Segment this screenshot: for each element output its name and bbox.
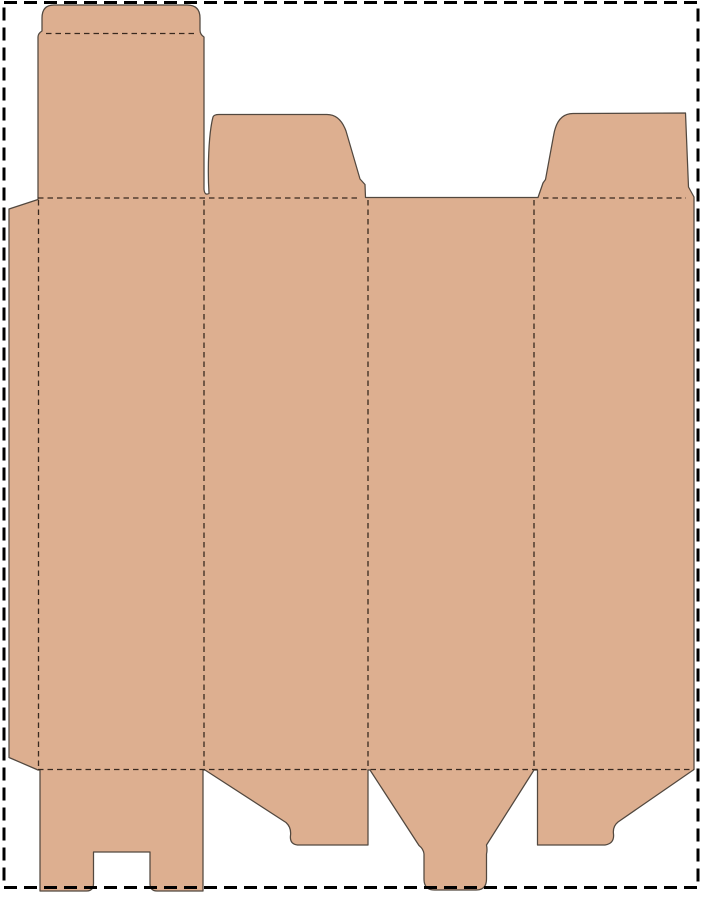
dieline-diagram <box>0 0 701 900</box>
cutting-sheet <box>0 0 701 900</box>
carton-blank-outline <box>9 5 694 891</box>
